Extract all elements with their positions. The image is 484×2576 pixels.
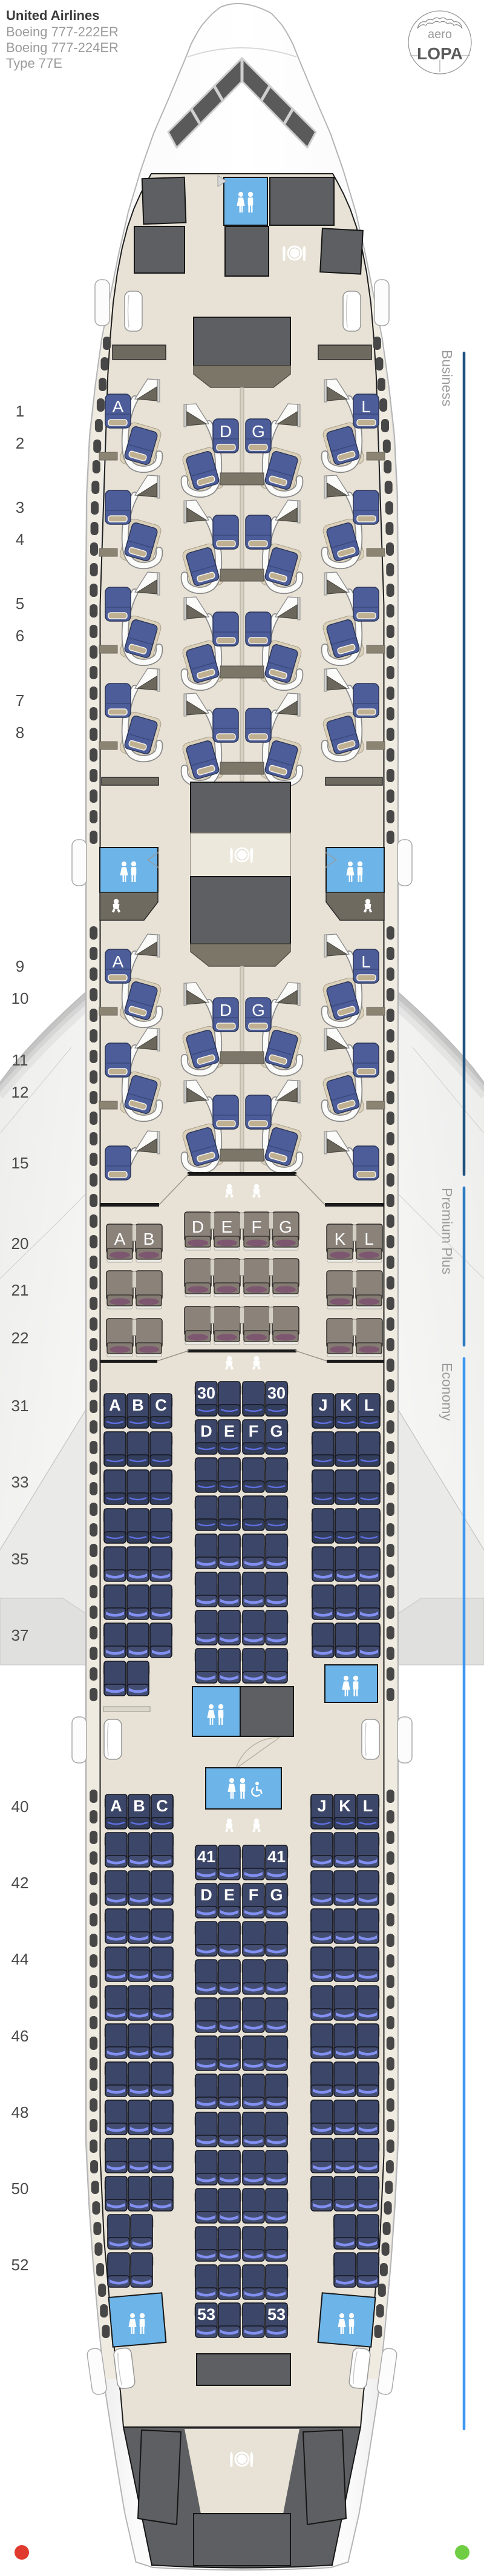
- svg-text:33: 33: [11, 1473, 29, 1491]
- svg-text:35: 35: [11, 1550, 29, 1568]
- svg-text:C: C: [155, 1396, 167, 1414]
- svg-text:9: 9: [16, 957, 24, 975]
- svg-text:G: G: [270, 1422, 283, 1440]
- svg-text:30: 30: [197, 1384, 215, 1402]
- svg-text:A: A: [109, 1396, 121, 1414]
- svg-text:F: F: [249, 1886, 259, 1904]
- svg-text:B: B: [133, 1797, 145, 1815]
- svg-text:30: 30: [267, 1384, 286, 1402]
- svg-text:Business: Business: [439, 350, 455, 406]
- svg-text:F: F: [249, 1422, 259, 1440]
- svg-text:53: 53: [197, 2305, 215, 2324]
- svg-text:K: K: [340, 1396, 352, 1414]
- svg-text:50: 50: [11, 2179, 29, 2198]
- svg-text:52: 52: [11, 2256, 29, 2274]
- svg-text:11: 11: [12, 1051, 28, 1069]
- svg-text:53: 53: [267, 2305, 286, 2324]
- svg-text:LOPA: LOPA: [417, 44, 463, 63]
- svg-text:B: B: [143, 1230, 155, 1248]
- svg-text:A: A: [110, 1797, 122, 1815]
- svg-text:2: 2: [16, 434, 24, 452]
- svg-text:B: B: [132, 1396, 144, 1414]
- svg-text:A: A: [114, 1230, 126, 1248]
- svg-text:Economy: Economy: [439, 1363, 455, 1421]
- svg-text:22: 22: [11, 1329, 29, 1347]
- svg-text:21: 21: [11, 1281, 29, 1299]
- svg-text:E: E: [224, 1886, 235, 1904]
- svg-text:5: 5: [16, 595, 24, 613]
- svg-text:37: 37: [11, 1626, 29, 1644]
- svg-text:D: D: [192, 1217, 204, 1236]
- svg-text:D: D: [220, 1001, 232, 1020]
- svg-text:31: 31: [11, 1397, 29, 1415]
- svg-text:A: A: [113, 397, 124, 416]
- svg-text:G: G: [270, 1886, 283, 1904]
- svg-text:J: J: [317, 1797, 326, 1815]
- svg-text:Premium Plus: Premium Plus: [439, 1188, 455, 1274]
- svg-text:41: 41: [197, 1848, 215, 1866]
- svg-text:L: L: [361, 397, 371, 416]
- svg-text:42: 42: [11, 1874, 29, 1892]
- svg-text:46: 46: [11, 2027, 29, 2045]
- svg-text:41: 41: [267, 1848, 286, 1866]
- svg-text:L: L: [364, 1396, 374, 1414]
- svg-text:D: D: [200, 1886, 212, 1904]
- svg-text:G: G: [252, 422, 265, 441]
- svg-text:aero: aero: [428, 28, 452, 41]
- svg-text:E: E: [224, 1422, 235, 1440]
- svg-text:G: G: [279, 1217, 292, 1236]
- svg-text:40: 40: [11, 1797, 29, 1816]
- svg-text:D: D: [200, 1422, 212, 1440]
- svg-text:K: K: [339, 1797, 351, 1815]
- svg-text:7: 7: [16, 691, 24, 710]
- svg-text:A: A: [113, 952, 124, 971]
- svg-text:Boeing 777-222ER: Boeing 777-222ER: [6, 24, 119, 39]
- svg-text:E: E: [221, 1217, 233, 1236]
- svg-text:1: 1: [16, 402, 24, 420]
- svg-text:United Airlines: United Airlines: [6, 8, 99, 23]
- svg-text:20: 20: [11, 1234, 29, 1253]
- svg-text:G: G: [252, 1001, 265, 1020]
- svg-text:L: L: [363, 1797, 373, 1815]
- svg-text:4: 4: [16, 530, 24, 548]
- svg-text:J: J: [318, 1396, 327, 1414]
- svg-text:F: F: [251, 1217, 261, 1236]
- svg-text:44: 44: [11, 1950, 29, 1968]
- svg-text:48: 48: [11, 2103, 29, 2121]
- svg-text:Boeing 777-224ER: Boeing 777-224ER: [6, 40, 119, 55]
- svg-text:K: K: [335, 1230, 346, 1248]
- svg-text:8: 8: [16, 723, 24, 742]
- svg-text:10: 10: [11, 989, 29, 1007]
- svg-text:L: L: [364, 1230, 374, 1248]
- svg-text:15: 15: [11, 1154, 29, 1172]
- svg-text:Type 77E: Type 77E: [6, 56, 62, 71]
- svg-text:3: 3: [16, 498, 24, 516]
- svg-text:6: 6: [16, 627, 24, 645]
- svg-text:12: 12: [11, 1083, 29, 1101]
- svg-text:L: L: [361, 952, 371, 971]
- svg-text:C: C: [156, 1797, 168, 1815]
- svg-text:D: D: [220, 422, 232, 441]
